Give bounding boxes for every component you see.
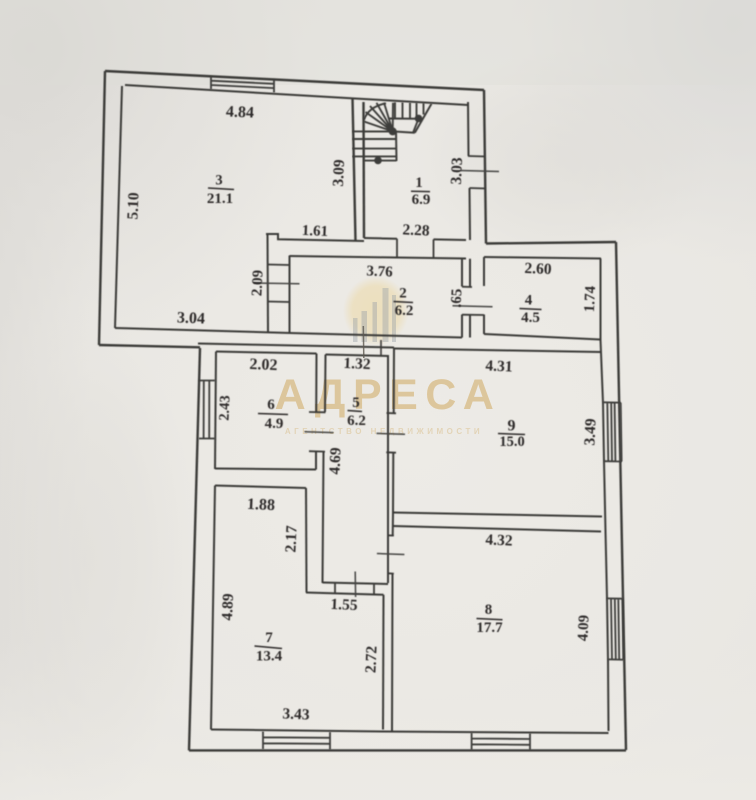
svg-text:2.17: 2.17 — [282, 525, 300, 553]
svg-text:6.9: 6.9 — [412, 192, 431, 208]
svg-text:4.69: 4.69 — [326, 447, 344, 475]
svg-text:1: 1 — [415, 175, 423, 191]
svg-text:2.60: 2.60 — [524, 260, 552, 278]
svg-text:2.28: 2.28 — [402, 221, 430, 239]
svg-text:7: 7 — [265, 630, 273, 646]
svg-text:3.09: 3.09 — [330, 159, 348, 187]
svg-text:3.04: 3.04 — [177, 309, 206, 327]
svg-text:3.76: 3.76 — [366, 263, 393, 280]
svg-text:4.09: 4.09 — [575, 615, 592, 642]
svg-text:3.43: 3.43 — [282, 705, 310, 723]
svg-text:1.55: 1.55 — [330, 596, 358, 614]
svg-text:3.49: 3.49 — [581, 418, 599, 446]
svg-text:5.10: 5.10 — [124, 192, 142, 220]
svg-text:4.5: 4.5 — [521, 310, 540, 326]
svg-text:6.2: 6.2 — [347, 413, 366, 429]
svg-text:6: 6 — [267, 397, 275, 413]
svg-text:4.31: 4.31 — [485, 357, 513, 375]
svg-text:4.84: 4.84 — [226, 103, 255, 121]
svg-text:9: 9 — [508, 418, 516, 435]
svg-text:1.32: 1.32 — [343, 355, 371, 373]
svg-text:4: 4 — [525, 293, 533, 309]
svg-text:2.72: 2.72 — [362, 645, 380, 673]
svg-text:13.4: 13.4 — [256, 649, 283, 665]
svg-text:15.0: 15.0 — [499, 434, 524, 450]
svg-text:1.88: 1.88 — [247, 496, 276, 514]
svg-text:4.32: 4.32 — [485, 531, 513, 549]
svg-text:1.74: 1.74 — [582, 285, 599, 312]
svg-text:6.2: 6.2 — [395, 303, 414, 319]
svg-text:3.03: 3.03 — [448, 157, 466, 185]
svg-text:17.7: 17.7 — [476, 620, 503, 636]
svg-text:4.9: 4.9 — [265, 416, 284, 432]
svg-text:1.61: 1.61 — [302, 223, 329, 240]
svg-text:2: 2 — [399, 286, 407, 302]
svg-text:2.02: 2.02 — [249, 356, 278, 374]
svg-text:21.1: 21.1 — [207, 191, 233, 207]
svg-text:2.09: 2.09 — [249, 270, 266, 297]
svg-text:.65: .65 — [449, 288, 466, 307]
svg-text:4.89: 4.89 — [219, 593, 237, 621]
svg-text:3: 3 — [215, 173, 222, 189]
svg-text:5: 5 — [352, 395, 360, 411]
svg-text:2.43: 2.43 — [216, 395, 233, 421]
svg-text:8: 8 — [485, 602, 493, 618]
